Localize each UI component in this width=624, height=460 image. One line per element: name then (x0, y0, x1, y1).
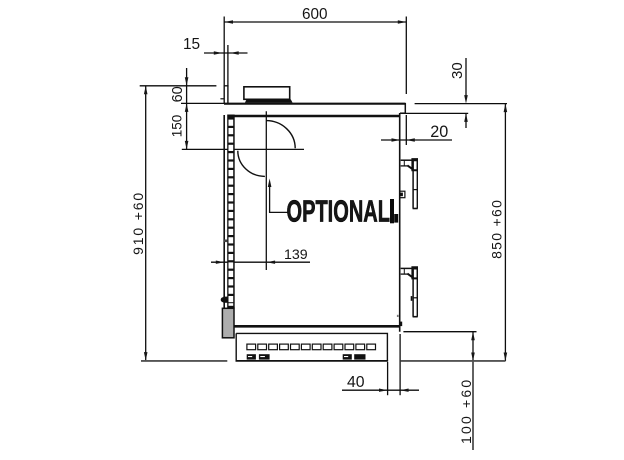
svg-text:40: 40 (347, 374, 365, 391)
svg-text:20: 20 (430, 123, 448, 141)
svg-text:30: 30 (449, 62, 466, 79)
svg-text:850 +60: 850 +60 (489, 199, 505, 259)
svg-text:150: 150 (170, 115, 185, 138)
svg-text:15: 15 (183, 36, 200, 53)
svg-text:60: 60 (170, 86, 186, 102)
svg-text:600: 600 (302, 6, 328, 23)
svg-text:100 +60: 100 +60 (458, 378, 474, 444)
svg-text:139: 139 (284, 247, 308, 263)
svg-text:910 +60: 910 +60 (130, 191, 146, 255)
svg-text:OPTIONAL: OPTIONAL (287, 194, 391, 229)
